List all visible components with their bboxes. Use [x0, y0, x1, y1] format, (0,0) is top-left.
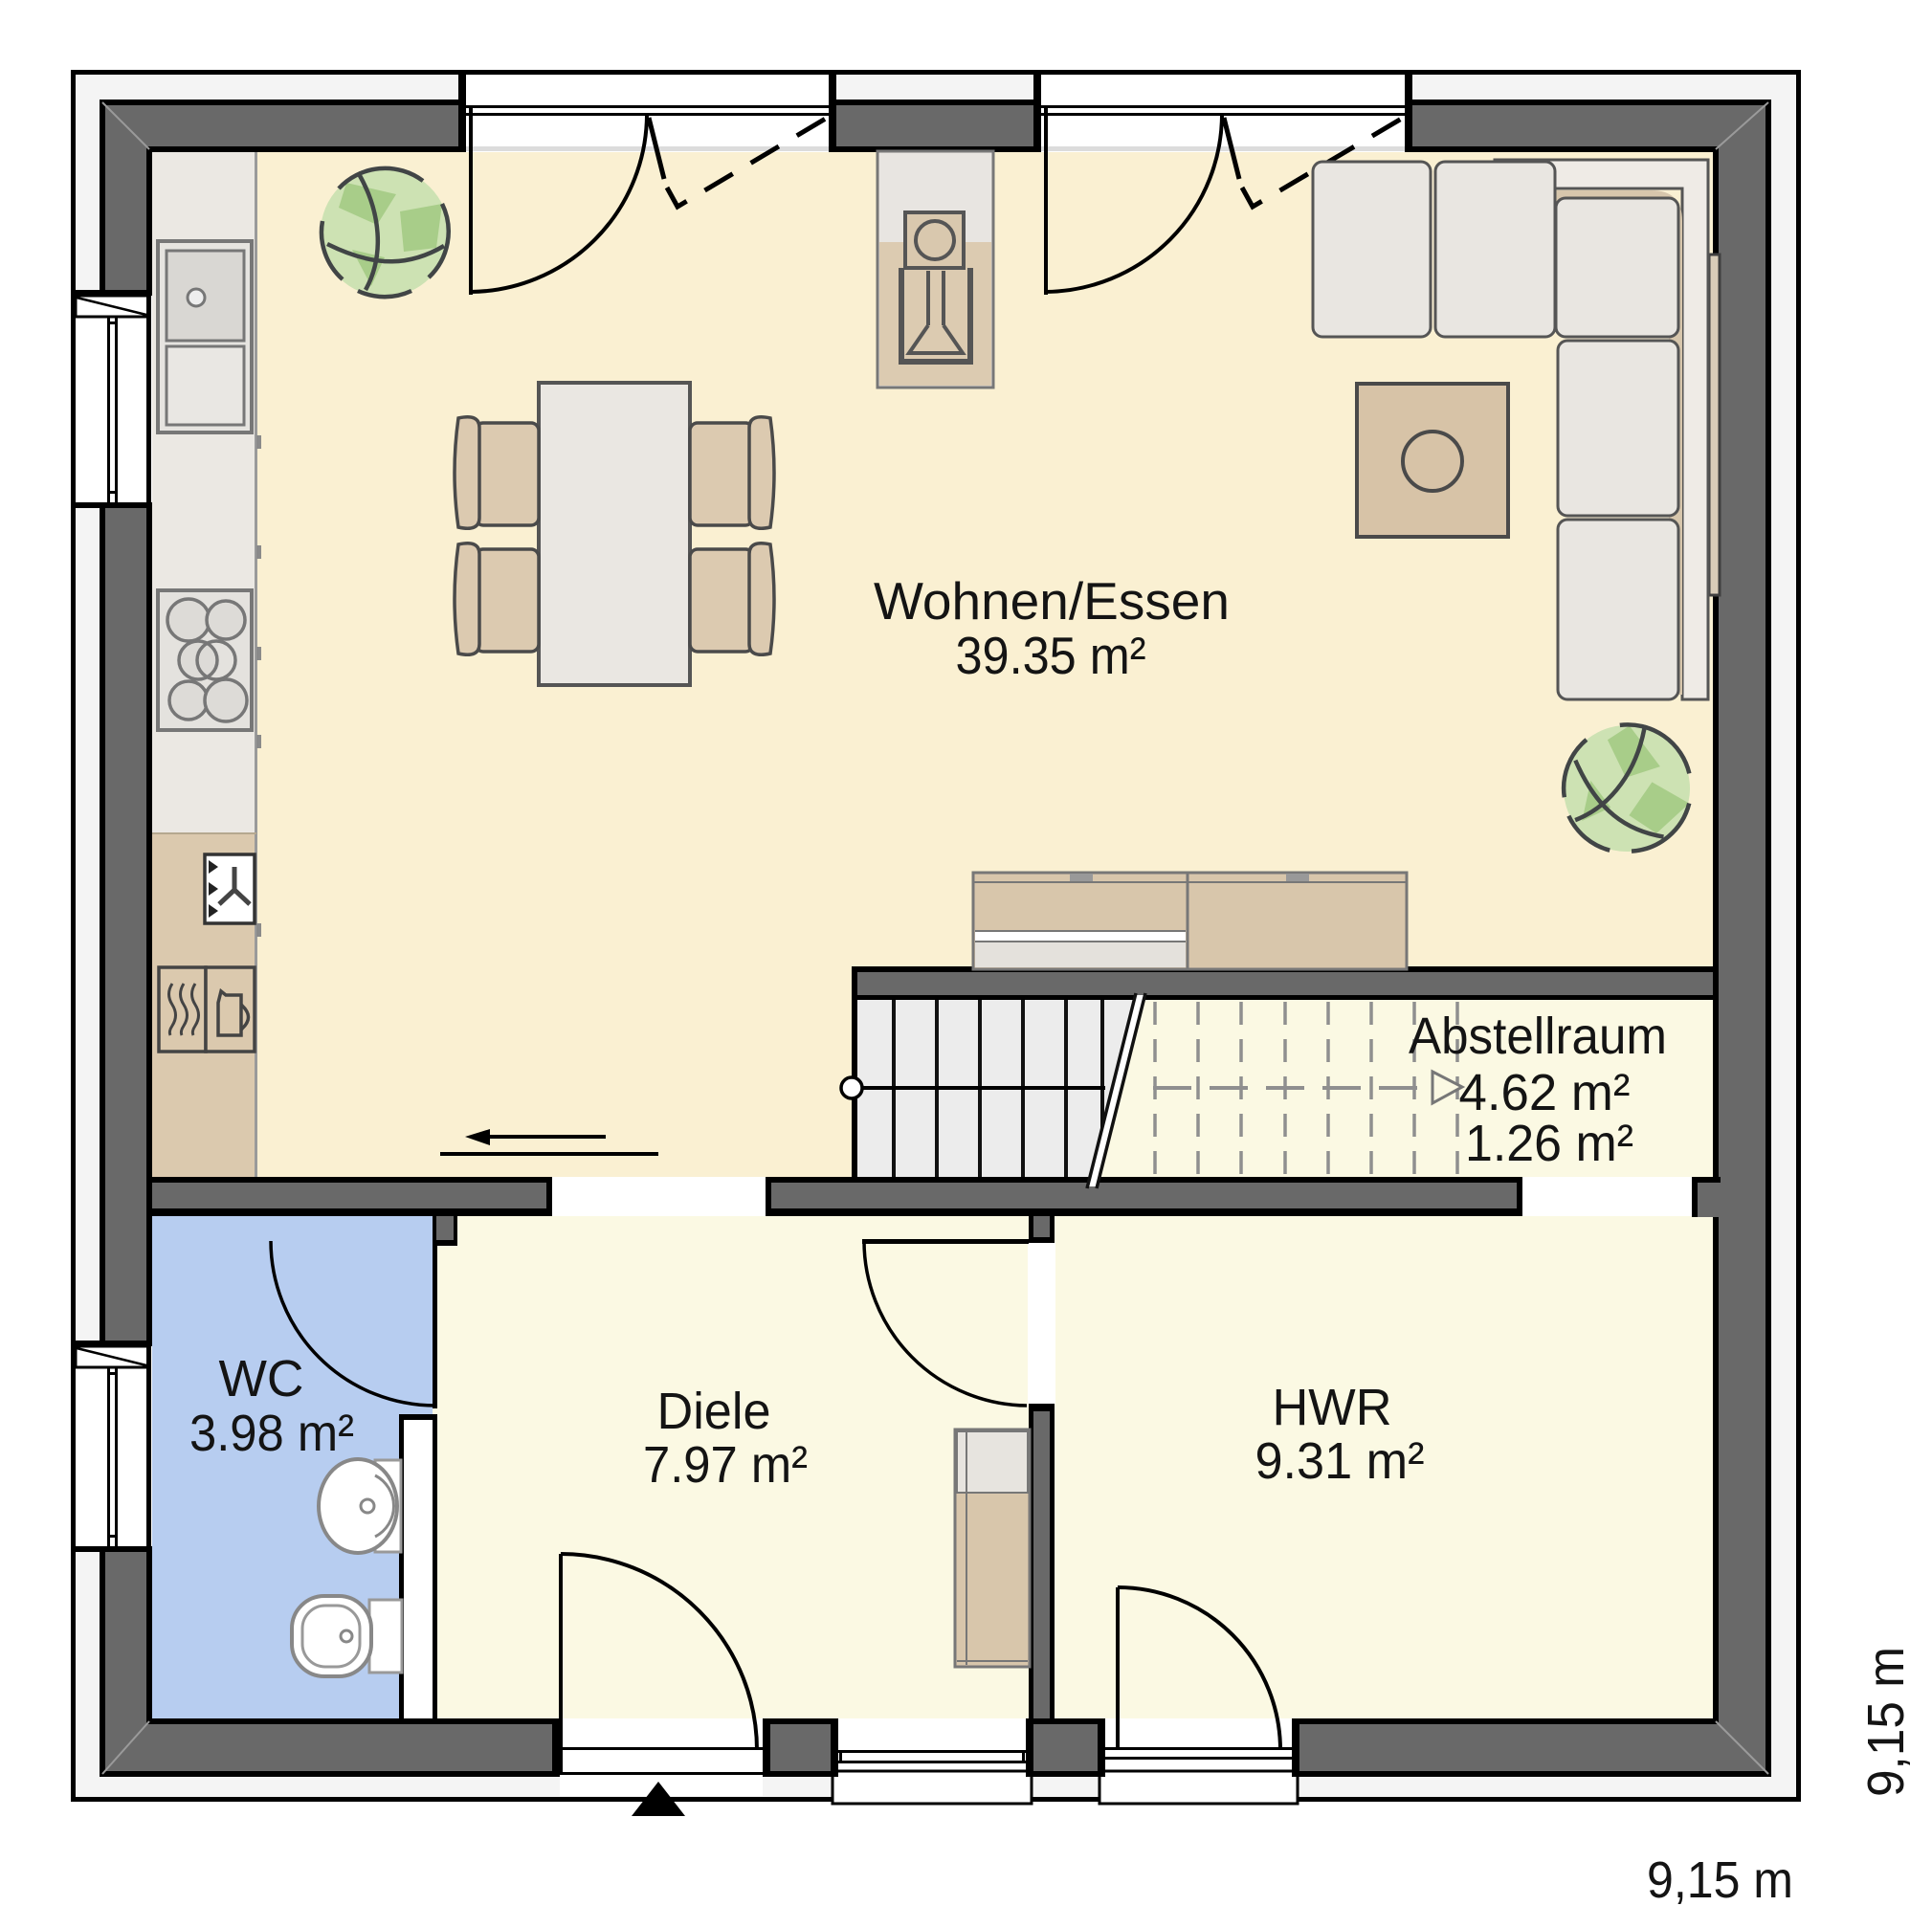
svg-text:9.31 m²: 9.31 m²: [1255, 1432, 1425, 1490]
svg-text:Abstellraum: Abstellraum: [1409, 1008, 1667, 1065]
svg-text:4.62 m²: 4.62 m²: [1459, 1064, 1631, 1121]
svg-text:Diele: Diele: [657, 1383, 771, 1440]
svg-text:7.97 m²: 7.97 m²: [643, 1436, 808, 1494]
svg-text:1.26 m²: 1.26 m²: [1465, 1115, 1633, 1172]
svg-text:9,15 m: 9,15 m: [1647, 1851, 1793, 1909]
svg-text:39.35 m²: 39.35 m²: [956, 626, 1146, 685]
svg-text:HWR: HWR: [1273, 1379, 1392, 1436]
svg-text:WC: WC: [219, 1350, 304, 1407]
svg-text:Wohnen/Essen: Wohnen/Essen: [874, 571, 1230, 631]
svg-text:3.98 m²: 3.98 m²: [189, 1405, 354, 1462]
svg-text:9,15 m: 9,15 m: [1857, 1647, 1915, 1797]
